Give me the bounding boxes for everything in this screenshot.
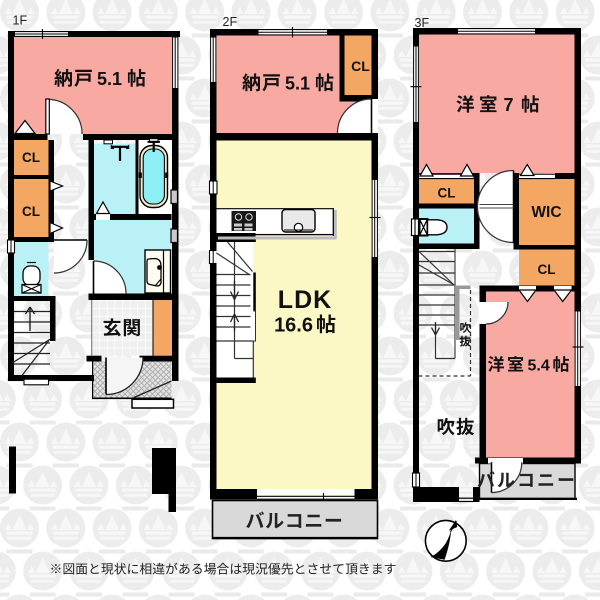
svg-text:CL: CL — [22, 204, 40, 219]
svg-text:CL: CL — [22, 150, 40, 165]
svg-text:CL: CL — [538, 262, 556, 277]
svg-text:5.1: 5.1 — [97, 69, 122, 89]
svg-text:7: 7 — [504, 95, 514, 115]
svg-text:LDK: LDK — [278, 286, 332, 314]
svg-text:5.4: 5.4 — [528, 358, 550, 375]
svg-text:16.6: 16.6 — [274, 315, 313, 337]
svg-text:CL: CL — [438, 186, 456, 201]
svg-text:WIC: WIC — [531, 204, 561, 221]
svg-text:1F: 1F — [13, 14, 28, 28]
svg-text:2F: 2F — [223, 15, 238, 29]
svg-text:5.1: 5.1 — [285, 74, 310, 94]
svg-text:CL: CL — [351, 58, 370, 74]
svg-text:3F: 3F — [415, 16, 430, 30]
